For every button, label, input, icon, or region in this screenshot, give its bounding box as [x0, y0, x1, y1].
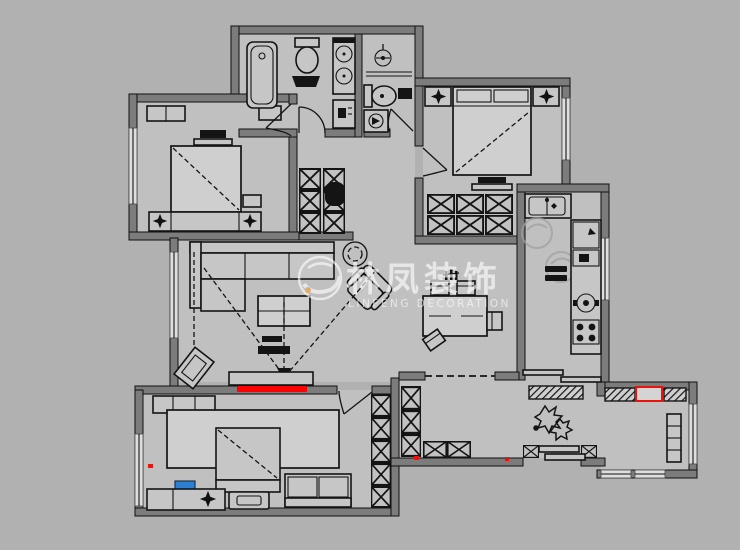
toilet	[295, 38, 319, 73]
window	[135, 434, 143, 506]
window	[635, 470, 665, 478]
floor-plan-canvas: 林凤装饰 LINFENG DECORATION	[0, 0, 740, 550]
window	[170, 252, 178, 338]
bench	[229, 492, 269, 509]
toilet	[364, 85, 396, 107]
hatched-cabinet	[664, 388, 686, 401]
floor-mark	[545, 275, 567, 281]
floor-mark	[545, 266, 567, 272]
storage-cell	[300, 169, 321, 189]
window	[689, 404, 697, 464]
window	[601, 238, 609, 300]
tv-red	[237, 386, 307, 392]
cabinet	[333, 100, 355, 128]
storage-cell	[300, 213, 321, 233]
window	[601, 470, 631, 478]
stool	[243, 195, 261, 207]
loveseat	[285, 474, 351, 507]
bed-bench-base	[472, 184, 512, 190]
x-wardrobe	[372, 395, 391, 507]
red-mark	[505, 457, 509, 461]
watermark-subtitle: LINFENG DECORATION	[348, 298, 511, 310]
red-mark	[414, 456, 419, 460]
tv-console	[229, 372, 313, 385]
storage-cell	[300, 191, 321, 211]
bed-bench	[478, 177, 506, 183]
bed	[453, 87, 531, 175]
bed	[171, 146, 241, 212]
window	[129, 128, 137, 204]
washing-machine	[364, 110, 388, 132]
floor-item	[262, 336, 282, 342]
hatched-cabinet	[605, 388, 635, 401]
side-counter	[571, 220, 601, 354]
storage-cell	[524, 446, 539, 458]
chaise	[201, 279, 245, 311]
chair	[487, 312, 502, 330]
orange-dot	[305, 287, 311, 293]
double-vanity	[333, 38, 355, 94]
tv-base	[194, 139, 232, 145]
red-outlined-appliance	[636, 387, 662, 401]
floor-plan: 林凤装饰 LINFENG DECORATION	[0, 0, 740, 550]
shoe-cabinet-hatched	[529, 386, 583, 399]
window	[562, 98, 570, 160]
quilt	[216, 428, 280, 480]
storage-cell	[324, 213, 345, 233]
headboard-nightstands	[149, 212, 261, 231]
bath-mat	[292, 76, 320, 87]
bathtub	[247, 42, 277, 108]
sink-counter	[525, 194, 571, 218]
water-heater	[325, 182, 345, 206]
watermark-title: 林凤装饰	[346, 260, 502, 300]
tv-on-shelf	[200, 130, 226, 138]
radiator	[667, 414, 681, 462]
bath-mat	[398, 88, 412, 99]
red-mark	[148, 464, 153, 468]
